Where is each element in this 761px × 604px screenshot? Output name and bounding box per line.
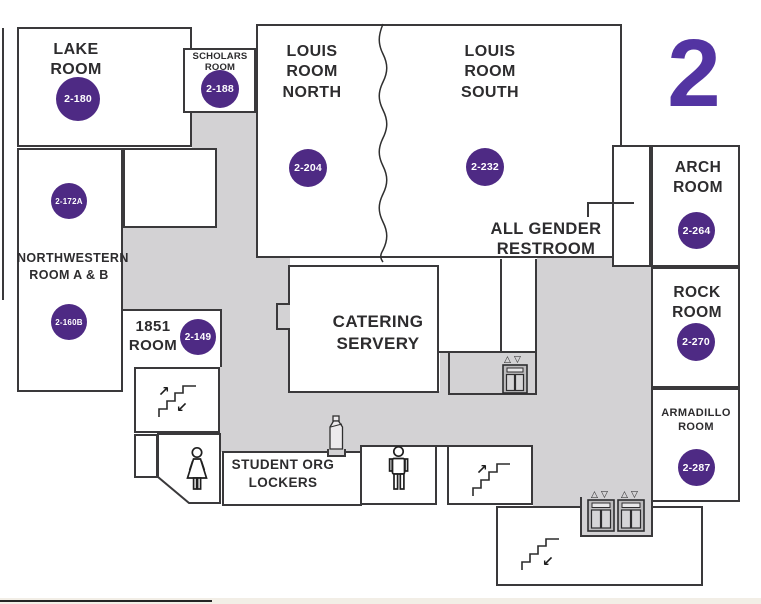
wall-divider-b bbox=[535, 259, 537, 352]
catering-door-notch bbox=[276, 303, 290, 330]
wall-gap-strip bbox=[437, 445, 447, 506]
room-mens-restroom bbox=[360, 445, 437, 505]
badge-2-188: 2-188 bbox=[201, 70, 239, 108]
room-1851-label: 1851 ROOM bbox=[122, 318, 184, 356]
page-bottom-line bbox=[0, 600, 212, 602]
room-unlabeled bbox=[123, 148, 217, 228]
badge-2-149: 2-149 bbox=[180, 319, 216, 355]
badge-2-270: 2-270 bbox=[677, 323, 715, 361]
wall-left-edge bbox=[2, 28, 4, 300]
restroom-leader-line-h bbox=[587, 202, 634, 204]
louis-south-label: LOUIS ROOM SOUTH bbox=[436, 42, 544, 103]
badge-2-232: 2-232 bbox=[466, 148, 504, 186]
floor-number: 2 bbox=[658, 26, 730, 122]
arch-room-label: ARCH ROOM bbox=[660, 158, 736, 198]
corridor-below-catering bbox=[290, 391, 440, 452]
rock-room-label: ROCK ROOM bbox=[659, 283, 735, 323]
louis-north-label: LOUIS ROOM NORTH bbox=[262, 42, 362, 103]
corridor-west-lower bbox=[220, 309, 256, 452]
elevator-alcove-east bbox=[580, 497, 653, 537]
northwestern-room-label: NORTHWESTERN ROOM A & B bbox=[17, 250, 121, 284]
badge-2-264: 2-264 bbox=[678, 212, 715, 249]
corridor-west-upper bbox=[123, 228, 256, 310]
catering-servery-label: CATERING SERVERY bbox=[308, 311, 448, 355]
room-womens-restroom bbox=[158, 434, 220, 503]
corridor-east-channel bbox=[537, 258, 651, 354]
badge-2-160B: 2-160B bbox=[51, 304, 87, 340]
womens-restroom-icon bbox=[188, 448, 207, 489]
wall-alcove-top bbox=[439, 351, 537, 353]
badge-2-180: 2-180 bbox=[56, 77, 100, 121]
corridor-center-column bbox=[256, 258, 290, 452]
wall-divider-a bbox=[500, 259, 502, 352]
room-small-west bbox=[134, 434, 158, 478]
badge-2-172A: 2-172A bbox=[51, 183, 87, 219]
badge-2-287: 2-287 bbox=[678, 449, 715, 486]
badge-2-204: 2-204 bbox=[289, 149, 327, 187]
elevator-alcove-mid bbox=[448, 352, 537, 395]
all-gender-restroom-label: ALL GENDER RESTROOM bbox=[466, 219, 626, 259]
student-org-lockers-label: STUDENT ORG LOCKERS bbox=[223, 456, 343, 491]
armadillo-room-label: ARMADILLO ROOM bbox=[654, 406, 738, 435]
stairwell-south bbox=[447, 445, 533, 505]
lake-room-label: LAKE ROOM bbox=[26, 40, 126, 81]
restroom-leader-line-v bbox=[587, 202, 589, 217]
floor-plan: LAKE ROOM SCHOLARS ROOM LOUIS ROOM NORTH… bbox=[0, 0, 761, 604]
stairwell-west bbox=[134, 367, 220, 433]
